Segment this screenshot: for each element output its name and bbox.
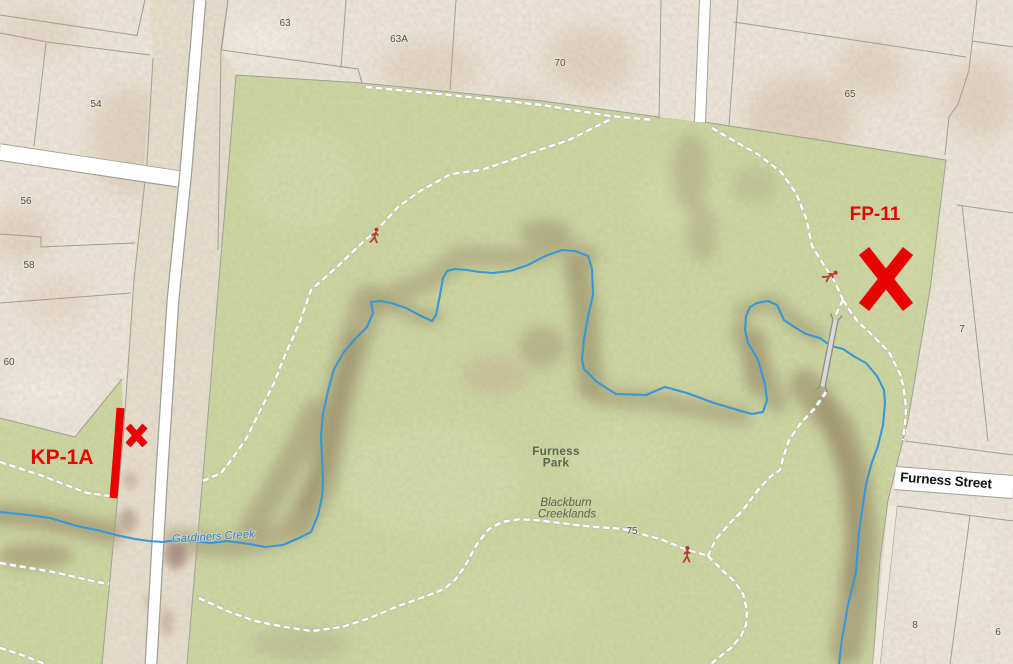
svg-text:8: 8 (912, 620, 918, 631)
svg-text:Park: Park (543, 457, 570, 470)
svg-text:60: 60 (3, 357, 15, 368)
svg-text:58: 58 (23, 260, 35, 271)
svg-text:6: 6 (995, 627, 1001, 638)
svg-text:65: 65 (844, 89, 856, 100)
svg-text:54: 54 (90, 99, 102, 110)
svg-text:7: 7 (959, 324, 965, 335)
svg-text:FP-11: FP-11 (850, 204, 901, 225)
svg-text:63: 63 (279, 18, 291, 29)
svg-text:70: 70 (554, 58, 566, 69)
svg-text:KP-1A: KP-1A (30, 446, 93, 469)
svg-text:63A: 63A (390, 34, 408, 45)
svg-text:56: 56 (20, 196, 32, 207)
svg-text:Creeklands: Creeklands (538, 509, 596, 521)
svg-text:Blackburn: Blackburn (540, 497, 591, 509)
svg-text:75: 75 (626, 526, 638, 537)
